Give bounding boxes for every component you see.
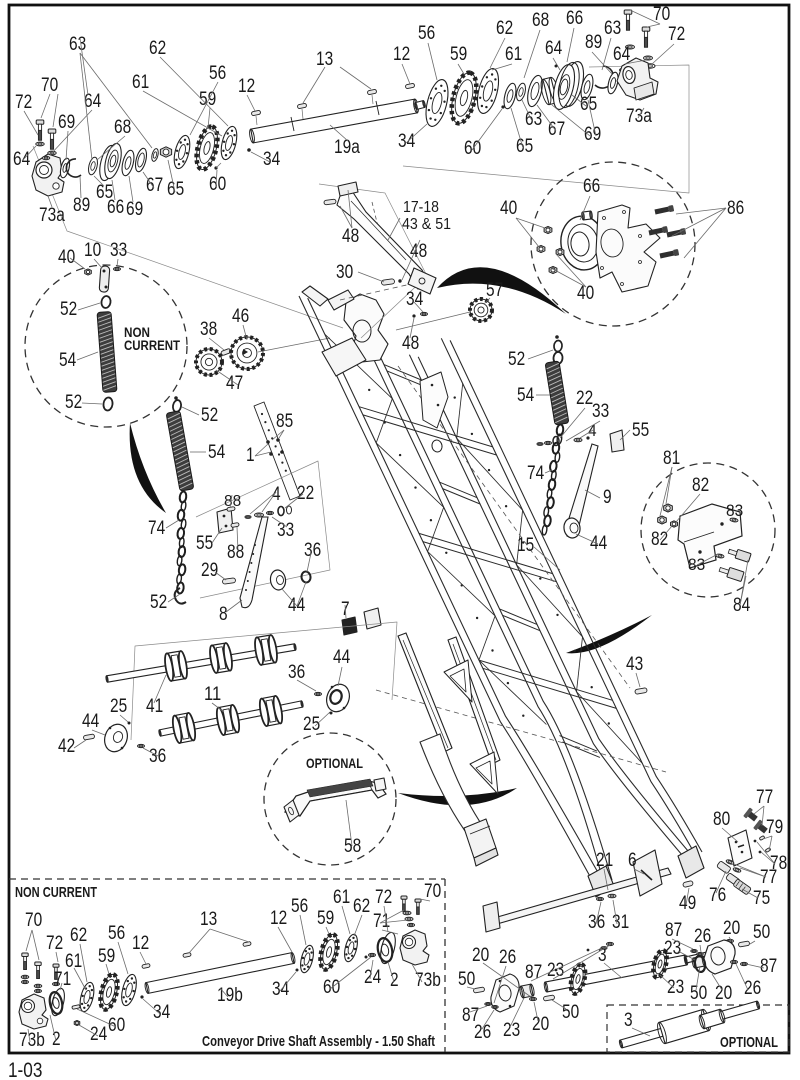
svg-text:33: 33 [277,520,294,541]
svg-text:22: 22 [297,483,314,504]
svg-text:44: 44 [590,533,608,554]
svg-text:73a: 73a [39,205,65,226]
svg-text:68: 68 [532,10,549,31]
svg-text:48: 48 [410,241,427,262]
svg-text:21: 21 [596,850,613,871]
svg-text:62: 62 [353,896,370,917]
svg-text:88: 88 [224,493,241,510]
svg-text:62: 62 [70,925,87,946]
svg-text:57: 57 [486,280,503,301]
svg-text:38: 38 [200,319,217,340]
svg-text:56: 56 [418,23,435,44]
svg-text:54: 54 [59,350,77,371]
svg-text:66: 66 [566,8,583,29]
svg-text:36: 36 [304,540,321,561]
svg-text:23: 23 [664,938,681,959]
svg-text:76: 76 [709,885,726,906]
svg-text:56: 56 [209,63,226,84]
svg-text:72: 72 [375,887,392,908]
svg-text:41: 41 [146,696,163,717]
svg-text:63: 63 [69,34,86,55]
svg-text:26: 26 [694,926,711,947]
svg-text:58: 58 [344,836,361,857]
svg-text:65: 65 [167,179,184,200]
svg-text:31: 31 [612,912,629,933]
svg-text:25: 25 [110,696,127,717]
svg-text:52: 52 [65,392,82,413]
svg-text:26: 26 [474,1022,491,1043]
svg-text:24: 24 [364,967,382,988]
svg-text:83: 83 [688,555,705,574]
svg-text:88: 88 [227,542,244,563]
svg-text:85: 85 [276,411,293,432]
svg-text:10: 10 [84,240,101,261]
svg-text:87: 87 [760,956,777,977]
svg-text:50: 50 [562,1002,579,1023]
svg-text:61: 61 [505,44,522,65]
svg-text:19b: 19b [217,985,243,1006]
svg-text:74: 74 [527,463,545,484]
svg-text:75: 75 [753,888,770,909]
svg-text:50: 50 [690,983,707,1004]
svg-text:72: 72 [46,933,63,954]
svg-text:40: 40 [58,247,75,268]
svg-text:70: 70 [424,881,441,902]
svg-text:61: 61 [132,72,149,93]
svg-text:13: 13 [316,49,333,70]
svg-text:52: 52 [60,299,77,320]
svg-text:29: 29 [201,560,218,581]
svg-text:60: 60 [209,174,226,195]
svg-text:20: 20 [532,1014,549,1035]
svg-text:44: 44 [82,711,100,732]
svg-text:54: 54 [208,442,226,463]
svg-text:56: 56 [291,896,308,917]
svg-text:77: 77 [756,787,773,808]
svg-text:13: 13 [200,909,217,930]
svg-text:89: 89 [585,32,602,53]
svg-text:69: 69 [58,112,75,133]
svg-text:30: 30 [336,262,353,283]
svg-text:36: 36 [288,662,305,683]
svg-text:47: 47 [226,373,243,394]
svg-text:82: 82 [692,475,709,496]
svg-text:79: 79 [766,817,783,838]
svg-text:34: 34 [153,1002,171,1023]
svg-text:11: 11 [204,684,221,705]
svg-text:46: 46 [232,306,249,327]
svg-text:43: 43 [626,654,643,675]
svg-text:81: 81 [663,448,680,469]
svg-text:44: 44 [333,647,351,668]
svg-text:1-03: 1-03 [8,1059,42,1080]
svg-text:73b: 73b [415,970,441,991]
svg-text:25: 25 [303,714,320,735]
svg-text:55: 55 [632,420,649,441]
svg-text:15: 15 [517,535,534,556]
svg-text:67: 67 [548,119,565,140]
svg-text:74: 74 [148,518,166,539]
svg-text:23: 23 [667,977,684,998]
svg-text:48: 48 [342,226,359,247]
svg-text:12: 12 [393,44,410,65]
svg-text:NON CURRENT: NON CURRENT [15,884,97,901]
svg-text:43 & 51: 43 & 51 [402,216,451,233]
svg-text:64: 64 [13,149,31,170]
svg-text:36: 36 [149,746,166,767]
svg-text:62: 62 [149,38,166,59]
svg-text:68: 68 [114,117,131,138]
svg-text:63: 63 [604,18,621,39]
svg-text:64: 64 [545,38,563,59]
svg-text:3: 3 [624,1010,633,1031]
svg-text:20: 20 [723,918,740,939]
svg-text:66: 66 [107,197,124,218]
svg-text:Conveyor Drive Shaft Assembly: Conveyor Drive Shaft Assembly - 1.50 Sha… [202,1033,435,1050]
svg-text:66: 66 [583,176,600,197]
svg-text:12: 12 [270,908,287,929]
svg-text:65: 65 [516,136,533,157]
svg-text:69: 69 [126,199,143,220]
svg-text:26: 26 [744,978,761,999]
svg-text:OPTIONAL: OPTIONAL [720,1034,778,1051]
svg-text:50: 50 [458,969,475,990]
svg-text:12: 12 [238,76,255,97]
svg-text:62: 62 [496,18,513,39]
svg-text:71: 71 [54,969,71,990]
svg-text:20: 20 [472,945,489,966]
svg-text:82: 82 [651,529,668,550]
svg-text:55: 55 [196,533,213,554]
svg-text:59: 59 [450,44,467,65]
svg-text:26: 26 [499,947,516,968]
svg-text:8: 8 [219,604,228,625]
svg-text:42: 42 [58,736,75,757]
svg-text:80: 80 [713,809,730,830]
svg-text:72: 72 [668,24,685,45]
svg-text:OPTIONAL: OPTIONAL [306,755,363,771]
svg-text:34: 34 [398,131,416,152]
svg-text:2: 2 [52,1029,61,1050]
svg-text:52: 52 [508,349,525,370]
svg-text:22: 22 [576,388,593,409]
svg-text:60: 60 [108,1015,125,1036]
svg-text:52: 52 [201,405,218,426]
svg-text:34: 34 [406,289,424,310]
svg-text:64: 64 [613,44,631,65]
svg-text:72: 72 [15,92,32,113]
svg-text:59: 59 [98,946,115,967]
svg-text:50: 50 [753,922,770,943]
svg-text:CURRENT: CURRENT [124,338,181,353]
svg-text:52: 52 [150,592,167,613]
svg-text:20: 20 [715,983,732,1004]
svg-text:17-18: 17-18 [403,199,439,216]
svg-text:40: 40 [500,198,517,219]
svg-text:12: 12 [132,933,149,954]
svg-text:77: 77 [760,867,777,888]
svg-text:54: 54 [517,385,535,406]
svg-text:1: 1 [246,445,255,466]
svg-text:33: 33 [110,240,127,261]
svg-text:67: 67 [146,175,163,196]
svg-text:59: 59 [317,908,334,929]
svg-text:83: 83 [726,501,743,520]
svg-text:9: 9 [603,487,612,508]
svg-text:69: 69 [584,124,601,145]
svg-text:73b: 73b [19,1030,45,1051]
svg-text:61: 61 [333,887,350,908]
svg-text:70: 70 [41,75,58,96]
svg-text:6: 6 [628,850,637,871]
svg-text:56: 56 [108,923,125,944]
svg-text:89: 89 [73,195,90,216]
svg-text:70: 70 [25,910,42,931]
svg-text:24: 24 [90,1024,108,1045]
svg-text:86: 86 [727,198,744,219]
svg-text:33: 33 [592,401,609,422]
